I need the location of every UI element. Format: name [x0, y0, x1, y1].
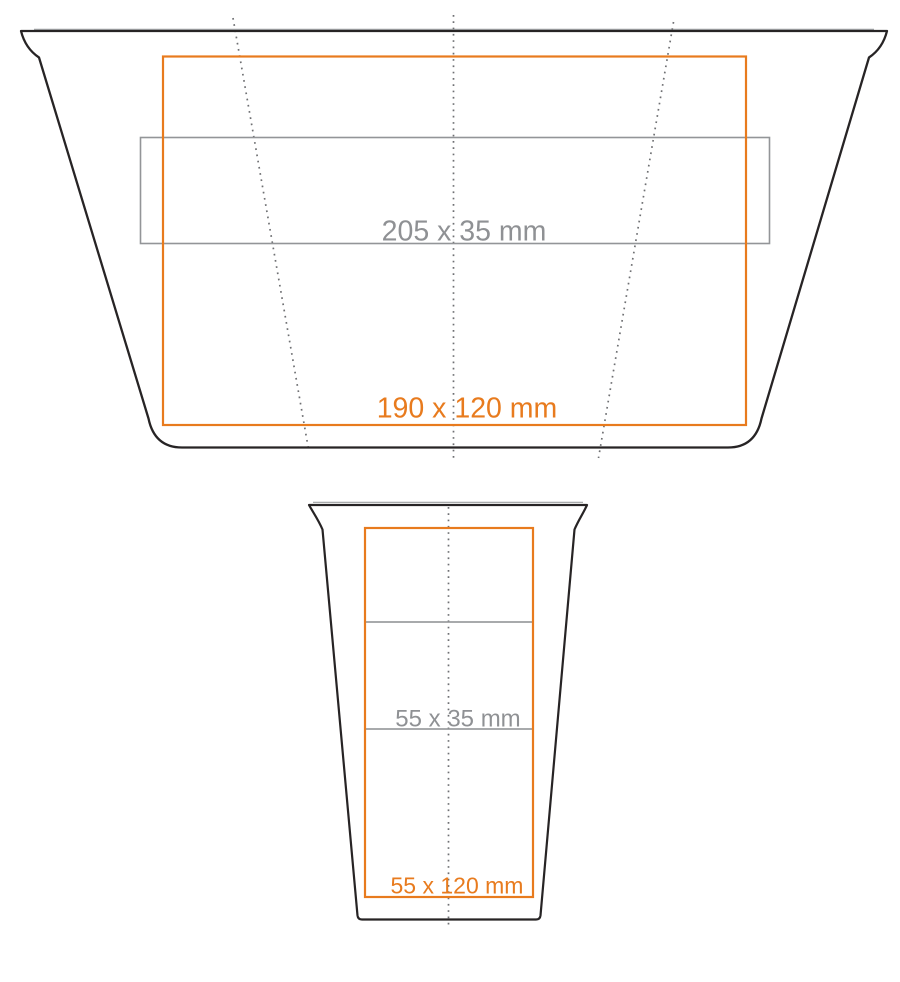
side-print-area-label: 55 x 120 mm	[391, 873, 524, 899]
left-seam-guide-dotted-line	[233, 18, 309, 452]
side-view: 55 x 35 mm 55 x 120 mm	[309, 502, 587, 927]
side-wrap-area-label: 55 x 35 mm	[395, 706, 520, 733]
flattened-print-area-label: 190 x 120 mm	[377, 393, 558, 425]
flattened-view: 205 x 35 mm 190 x 120 mm	[21, 15, 887, 461]
right-seam-guide-dotted-line	[599, 22, 674, 458]
diagram-canvas: 205 x 35 mm 190 x 120 mm 55 x 35 mm 55 x…	[0, 0, 900, 982]
cup-print-template-diagram: 205 x 35 mm 190 x 120 mm 55 x 35 mm 55 x…	[0, 0, 900, 982]
flattened-wrap-area-label: 205 x 35 mm	[382, 216, 547, 248]
